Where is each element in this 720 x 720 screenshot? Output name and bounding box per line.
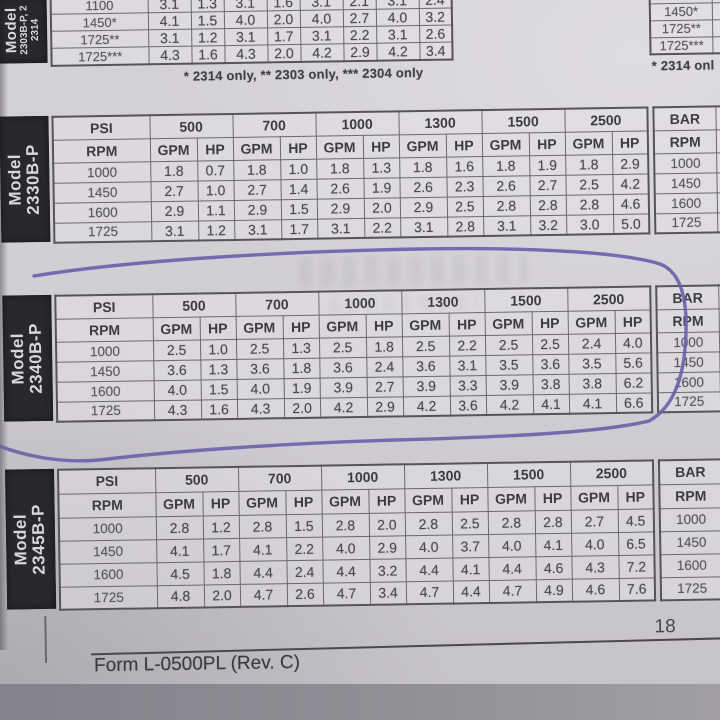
data-value: 1.0 (280, 159, 316, 180)
data-value: 2.7 (233, 179, 280, 200)
hp-header: HP (615, 309, 651, 333)
data-value: 1.8 (150, 161, 197, 182)
data-value: 4.1 (533, 394, 569, 415)
pressure-header: 1000 (318, 290, 401, 314)
data-value: 4.4 (488, 556, 535, 580)
data-value: 4.0 (405, 535, 452, 559)
data-value: 2.7 (367, 376, 403, 397)
data-value: 2.6 (482, 175, 529, 196)
data-value: 4.0 (322, 536, 369, 560)
pressure-header: 700 (238, 466, 321, 491)
data-value: 3.7 (452, 534, 488, 558)
data-value: 1.6 (446, 156, 482, 177)
model-label-line: 2345B-P (30, 504, 49, 575)
data-value: 3.6 (319, 357, 366, 378)
cut-column (712, 19, 720, 36)
data-value: 3.8 (533, 374, 569, 395)
hp-header: HP (529, 132, 565, 156)
paper-sheet: Model2303B-P, 2231411003.11.33.11.63.12.… (0, 0, 720, 686)
psi-gpm-hp-table: PSI5007001000130015002500RPMGPMHPGPMHPGP… (57, 459, 656, 610)
data-value: 4.3 (571, 555, 618, 579)
data-value: 2.0 (204, 584, 240, 608)
data-value: 4.1 (569, 393, 616, 414)
data-value: 2.9 (400, 197, 447, 218)
psi-gpm-hp-table: PSI5007001000130015002500RPMGPMHPGPMHPGP… (51, 106, 650, 243)
gpm-header: GPM (487, 486, 534, 511)
psi-header: PSI (52, 115, 149, 140)
gpm-header: GPM (565, 131, 612, 155)
hp-header: HP (200, 316, 236, 340)
hp-header: HP (446, 133, 482, 157)
gpm-header: GPM (153, 317, 200, 341)
pressure-header: 1300 (398, 110, 481, 134)
data-value: 2.9 (234, 199, 281, 220)
bar-rpm-table: BARRPM1000145016001725 (658, 458, 720, 601)
pressure-header: 700 (232, 113, 315, 137)
cut-column (716, 172, 720, 192)
rpm-value: 1600 (660, 553, 720, 577)
data-value: 2.9 (317, 198, 364, 219)
rpm-value: 1600 (59, 562, 156, 587)
data-value: 4.4 (405, 558, 452, 582)
data-value: 3.9 (486, 374, 533, 395)
rpm-value: 1000 (660, 507, 720, 531)
hp-header: HP (451, 487, 487, 512)
rpm-value: 1000 (53, 161, 150, 183)
data-value: 4.1 (156, 538, 203, 562)
data-value: 7.6 (619, 577, 655, 601)
data-value: 4.2 (403, 396, 450, 417)
data-value: 3.1 (483, 215, 530, 236)
data-value: 1.8 (366, 336, 402, 357)
data-value: 2.8 (535, 510, 571, 534)
data-value: 1.7 (281, 219, 317, 240)
hp-header: HP (366, 313, 402, 337)
footnote-models: * 2314 only, ** 2303 only, *** 2304 only (184, 65, 424, 84)
data-value: 2.7 (150, 181, 197, 202)
rpm-value: 1725** (650, 19, 712, 37)
rpm-value: 1000 (657, 331, 719, 352)
pressure-header: 500 (149, 114, 232, 138)
rpm-header: RPM (659, 483, 720, 508)
data-value: 2.8 (405, 512, 452, 536)
footer-rule (91, 637, 720, 655)
rpm-value: 1450 (53, 181, 150, 203)
data-value: 5.6 (615, 352, 651, 373)
data-value: 3.2 (530, 215, 566, 236)
data-value: 2.9 (369, 535, 405, 559)
bar-header: BAR (653, 106, 715, 130)
pressure-header: 2500 (570, 460, 653, 485)
data-value: 3.5 (485, 354, 532, 375)
data-value: 2.9 (612, 153, 648, 174)
data-value: 4.0 (154, 380, 201, 401)
data-value: 1.8 (482, 155, 529, 176)
data-value: 1.3 (283, 338, 319, 359)
psi-header: PSI (58, 468, 155, 494)
data-value: 2.4 (568, 333, 615, 354)
hp-header: HP (449, 312, 485, 336)
data-value: 4.3 (154, 400, 201, 421)
data-value: 6.2 (616, 372, 652, 393)
page-number: 18 (654, 616, 675, 638)
footer-form-number: Form L-0500PL (Rev. C) (94, 652, 300, 677)
data-value: 4.7 (489, 579, 536, 603)
data-value: 4.2 (320, 397, 367, 418)
data-value: 0.7 (197, 160, 233, 181)
cut-column (712, 2, 720, 19)
data-value: 4.5 (156, 561, 203, 585)
rpm-value: 1450 (660, 530, 720, 554)
data-value: 3.1 (449, 355, 485, 376)
data-value: 2.0 (364, 197, 400, 218)
data-value: 6.6 (616, 392, 652, 413)
data-value: 1.8 (565, 154, 612, 175)
data-value: 4.0 (237, 378, 284, 399)
rpm-value: 1000 (59, 516, 156, 541)
footnote-models-partial: * 2314 onl (652, 57, 720, 73)
data-value: 4.0 (488, 533, 535, 557)
rpm-value: 1450 (59, 539, 156, 564)
data-value: 4.0 (615, 332, 651, 353)
data-value: 2.6 (287, 583, 323, 607)
data-value: 1.8 (283, 358, 319, 379)
rpm-value: 1000 (654, 152, 716, 173)
data-value: 2.2 (364, 217, 400, 238)
hp-header: HP (280, 136, 316, 160)
data-value: 1.3 (363, 157, 399, 178)
model-table-2345bp: Model2345B-PPSI5007001000130015002500RPM… (2, 458, 720, 610)
rpm-value: 1725 (661, 576, 720, 600)
data-value: 2.5 (485, 334, 532, 355)
data-value: 2.8 (322, 513, 369, 537)
data-value: 2.5 (452, 511, 488, 535)
pressure-header: 1000 (321, 464, 404, 489)
data-value: 3.1 (234, 219, 281, 240)
gpm-header: GPM (321, 489, 368, 514)
data-value: 2.2 (449, 335, 485, 356)
rpm-value: 1600 (57, 380, 154, 402)
psi-gpm-hp-table: PSI5007001000130015002500RPMGPMHPGPMHPGP… (54, 285, 653, 422)
data-value: 1.0 (200, 339, 236, 360)
rpm-header: RPM (654, 129, 716, 153)
data-value: 2.5 (153, 340, 200, 361)
data-value: 4.3 (237, 398, 284, 419)
data-value: 2.7 (529, 175, 565, 196)
data-value: 1.0 (197, 180, 233, 201)
hp-header: HP (534, 486, 570, 511)
pressure-header: 1500 (487, 462, 570, 487)
hp-header: HP (197, 137, 233, 161)
data-value: 1.9 (529, 155, 565, 176)
data-value: 1.5 (281, 199, 317, 220)
data-value: 1.5 (286, 514, 322, 538)
rpm-value: 1000 (56, 340, 153, 362)
data-value: 2.8 (239, 514, 286, 538)
data-value: 1.9 (363, 177, 399, 198)
cut-column (716, 129, 720, 152)
hp-header: HP (532, 311, 568, 335)
data-value: 2.5 (447, 196, 483, 217)
data-value: 2.5 (532, 334, 568, 355)
page-content: Model2303B-P, 2231411003.11.33.11.63.12.… (0, 0, 720, 692)
data-value: 2.8 (483, 195, 530, 216)
gpm-header: GPM (238, 490, 285, 515)
data-value: 3.6 (236, 358, 283, 379)
data-value: 6.5 (618, 531, 654, 555)
gpm-header: GPM (316, 135, 363, 159)
data-value: 3.6 (153, 360, 200, 381)
gpm-header: GPM (404, 488, 451, 513)
data-value: 4.0 (571, 532, 618, 556)
gpm-header: GPM (570, 485, 617, 510)
data-value: 2.0 (284, 398, 320, 419)
gpm-header: GPM (399, 134, 446, 158)
data-value: 3.1 (317, 218, 364, 239)
data-value: 3.9 (320, 377, 367, 398)
pressure-header: 2500 (564, 107, 647, 131)
data-value: 2.0 (369, 512, 405, 536)
data-value: 4.5 (618, 508, 654, 532)
rpm-value: 1450 (654, 172, 716, 193)
rpm-value: 1725*** (650, 36, 712, 54)
page-margin-line (44, 616, 47, 663)
rpm-value: 1600 (54, 201, 151, 223)
data-value: 4.1 (452, 557, 488, 581)
data-value: 2.4 (366, 356, 402, 377)
pressure-header: 1000 (315, 111, 398, 135)
data-value: 3.8 (569, 373, 616, 394)
data-value: 3.9 (403, 376, 450, 397)
pressure-header: 700 (235, 292, 318, 316)
data-value: 3.6 (402, 356, 449, 377)
rpm-value: 1450 (657, 351, 719, 372)
hp-header: HP (363, 134, 399, 158)
bar-rpm-column-2303bp: 1450*1725**1725*** (0, 0, 720, 64)
hp-header: HP (283, 315, 319, 339)
data-value: 2.5 (402, 336, 449, 357)
data-value: 4.9 (536, 579, 572, 603)
rpm-value: 1600 (655, 192, 717, 213)
rpm-value: 1600 (658, 371, 720, 392)
data-value: 4.7 (323, 582, 370, 606)
pressure-header: 1500 (484, 288, 567, 312)
model-label-line: 2330B-P (24, 144, 43, 215)
data-value: 1.6 (201, 399, 237, 420)
ink-bleed-through (299, 253, 529, 287)
data-value: 4.7 (406, 581, 453, 605)
data-value: 1.2 (203, 515, 239, 539)
rpm-header: RPM (56, 317, 153, 342)
data-value: 1.1 (198, 200, 234, 221)
data-value: 1.2 (198, 220, 234, 241)
data-value: 4.8 (157, 584, 204, 608)
pressure-header: 2500 (567, 286, 650, 310)
gpm-header: GPM (236, 315, 283, 339)
bar-header: BAR (659, 459, 720, 484)
rpm-header: RPM (657, 308, 719, 332)
gpm-header: GPM (150, 138, 197, 162)
pressure-header: 1300 (404, 463, 487, 488)
data-value: 2.6 (399, 177, 446, 198)
gpm-header: GPM (485, 311, 532, 335)
data-value: 4.6 (535, 556, 571, 580)
pressure-header: 500 (152, 293, 235, 317)
bar-rpm-table: BARRPM1000145016001725 (652, 105, 720, 234)
cut-column (712, 36, 720, 53)
data-value: 3.2 (369, 558, 405, 582)
model-table-2340bp: Model2340B-PPSI5007001000130015002500RPM… (0, 284, 720, 422)
data-value: 2.5 (565, 174, 612, 195)
rpm-value: 1725 (658, 391, 720, 412)
data-value: 2.8 (566, 194, 613, 215)
rpm-header: RPM (53, 138, 150, 163)
data-value: 2.6 (316, 178, 363, 199)
bar-rpm-table: 1450*1725**1725*** (648, 0, 720, 55)
cut-column (715, 106, 720, 129)
data-value: 3.1 (151, 221, 198, 242)
data-value: 4.1 (239, 537, 286, 561)
gpm-header: GPM (568, 310, 615, 334)
data-value: 3.6 (450, 395, 486, 416)
gpm-header: GPM (233, 136, 280, 160)
data-value: 4.6 (613, 193, 649, 214)
rpm-header: RPM (58, 492, 155, 518)
data-value: 2.9 (151, 201, 198, 222)
data-value: 3.5 (568, 353, 615, 374)
data-value: 2.7 (571, 509, 618, 533)
data-value: 4.1 (535, 533, 571, 557)
data-value: 2.9 (367, 396, 403, 417)
data-value: 4.4 (453, 580, 489, 604)
data-value: 4.6 (572, 578, 619, 602)
data-value: 2.2 (286, 537, 322, 561)
rpm-value: 1450* (650, 2, 712, 20)
bar-header: BAR (656, 285, 718, 309)
model-table-2330bp: Model2330B-PPSI5007001000130015002500RPM… (0, 105, 720, 243)
gpm-header: GPM (319, 314, 366, 338)
data-value: 2.8 (156, 515, 203, 539)
model-label: Model2330B-P (0, 116, 50, 243)
data-value: 1.8 (399, 157, 446, 178)
data-value: 1.5 (201, 379, 237, 400)
hp-header: HP (617, 484, 653, 509)
rpm-value: 1725 (57, 400, 154, 422)
psi-header: PSI (55, 294, 152, 319)
data-value: 1.8 (233, 159, 280, 180)
data-value: 3.4 (370, 581, 406, 605)
data-value: 1.7 (203, 538, 239, 562)
data-value: 2.5 (236, 338, 283, 359)
pressure-header: 1300 (401, 289, 484, 313)
hp-header: HP (612, 130, 648, 154)
data-value: 1.9 (284, 378, 320, 399)
data-value: 3.6 (532, 354, 568, 375)
cut-column (716, 152, 720, 172)
data-value: 2.3 (446, 176, 482, 197)
gpm-header: GPM (155, 491, 202, 516)
gpm-header: GPM (402, 313, 449, 337)
rpm-value: 1725 (54, 221, 151, 243)
data-value: 7.2 (618, 554, 654, 578)
pressure-header: 500 (155, 467, 238, 492)
model-label-line: 2340B-P (27, 323, 46, 394)
data-value: 1.8 (203, 561, 239, 585)
data-value: 2.8 (488, 510, 535, 534)
gpm-header: GPM (482, 132, 529, 156)
data-value: 5.0 (613, 213, 649, 234)
model-label: Model2345B-P (5, 469, 56, 610)
photographed-document-page: Model2303B-P, 2231411003.11.33.11.63.12.… (0, 0, 720, 720)
data-value: 4.4 (239, 560, 286, 584)
data-value: 3.3 (450, 375, 486, 396)
hp-header: HP (285, 490, 321, 515)
model-label: Model2340B-P (2, 295, 53, 422)
data-value: 2.4 (286, 560, 322, 584)
data-value: 1.8 (316, 158, 363, 179)
data-value: 2.8 (530, 195, 566, 216)
bar-rpm-table: BARRPM1000145016001725 (655, 284, 720, 413)
rpm-value: 1725 (60, 585, 157, 610)
rpm-value: 1450 (56, 360, 153, 382)
data-value: 2.5 (319, 337, 366, 358)
data-value: 4.4 (322, 559, 369, 583)
hp-header: HP (368, 488, 404, 513)
data-value: 4.7 (240, 583, 287, 607)
data-value: 4.2 (612, 173, 648, 194)
data-value: 3.1 (400, 217, 447, 238)
rpm-value: 1725 (655, 212, 717, 233)
desk-surface (0, 684, 720, 720)
data-value: 2.8 (447, 216, 483, 237)
data-value: 3.0 (566, 214, 613, 235)
data-value: 1.4 (280, 179, 316, 200)
data-value: 4.2 (486, 394, 533, 415)
data-value: 1.3 (200, 359, 236, 380)
hp-header: HP (202, 491, 238, 516)
pressure-header: 1500 (481, 109, 564, 133)
